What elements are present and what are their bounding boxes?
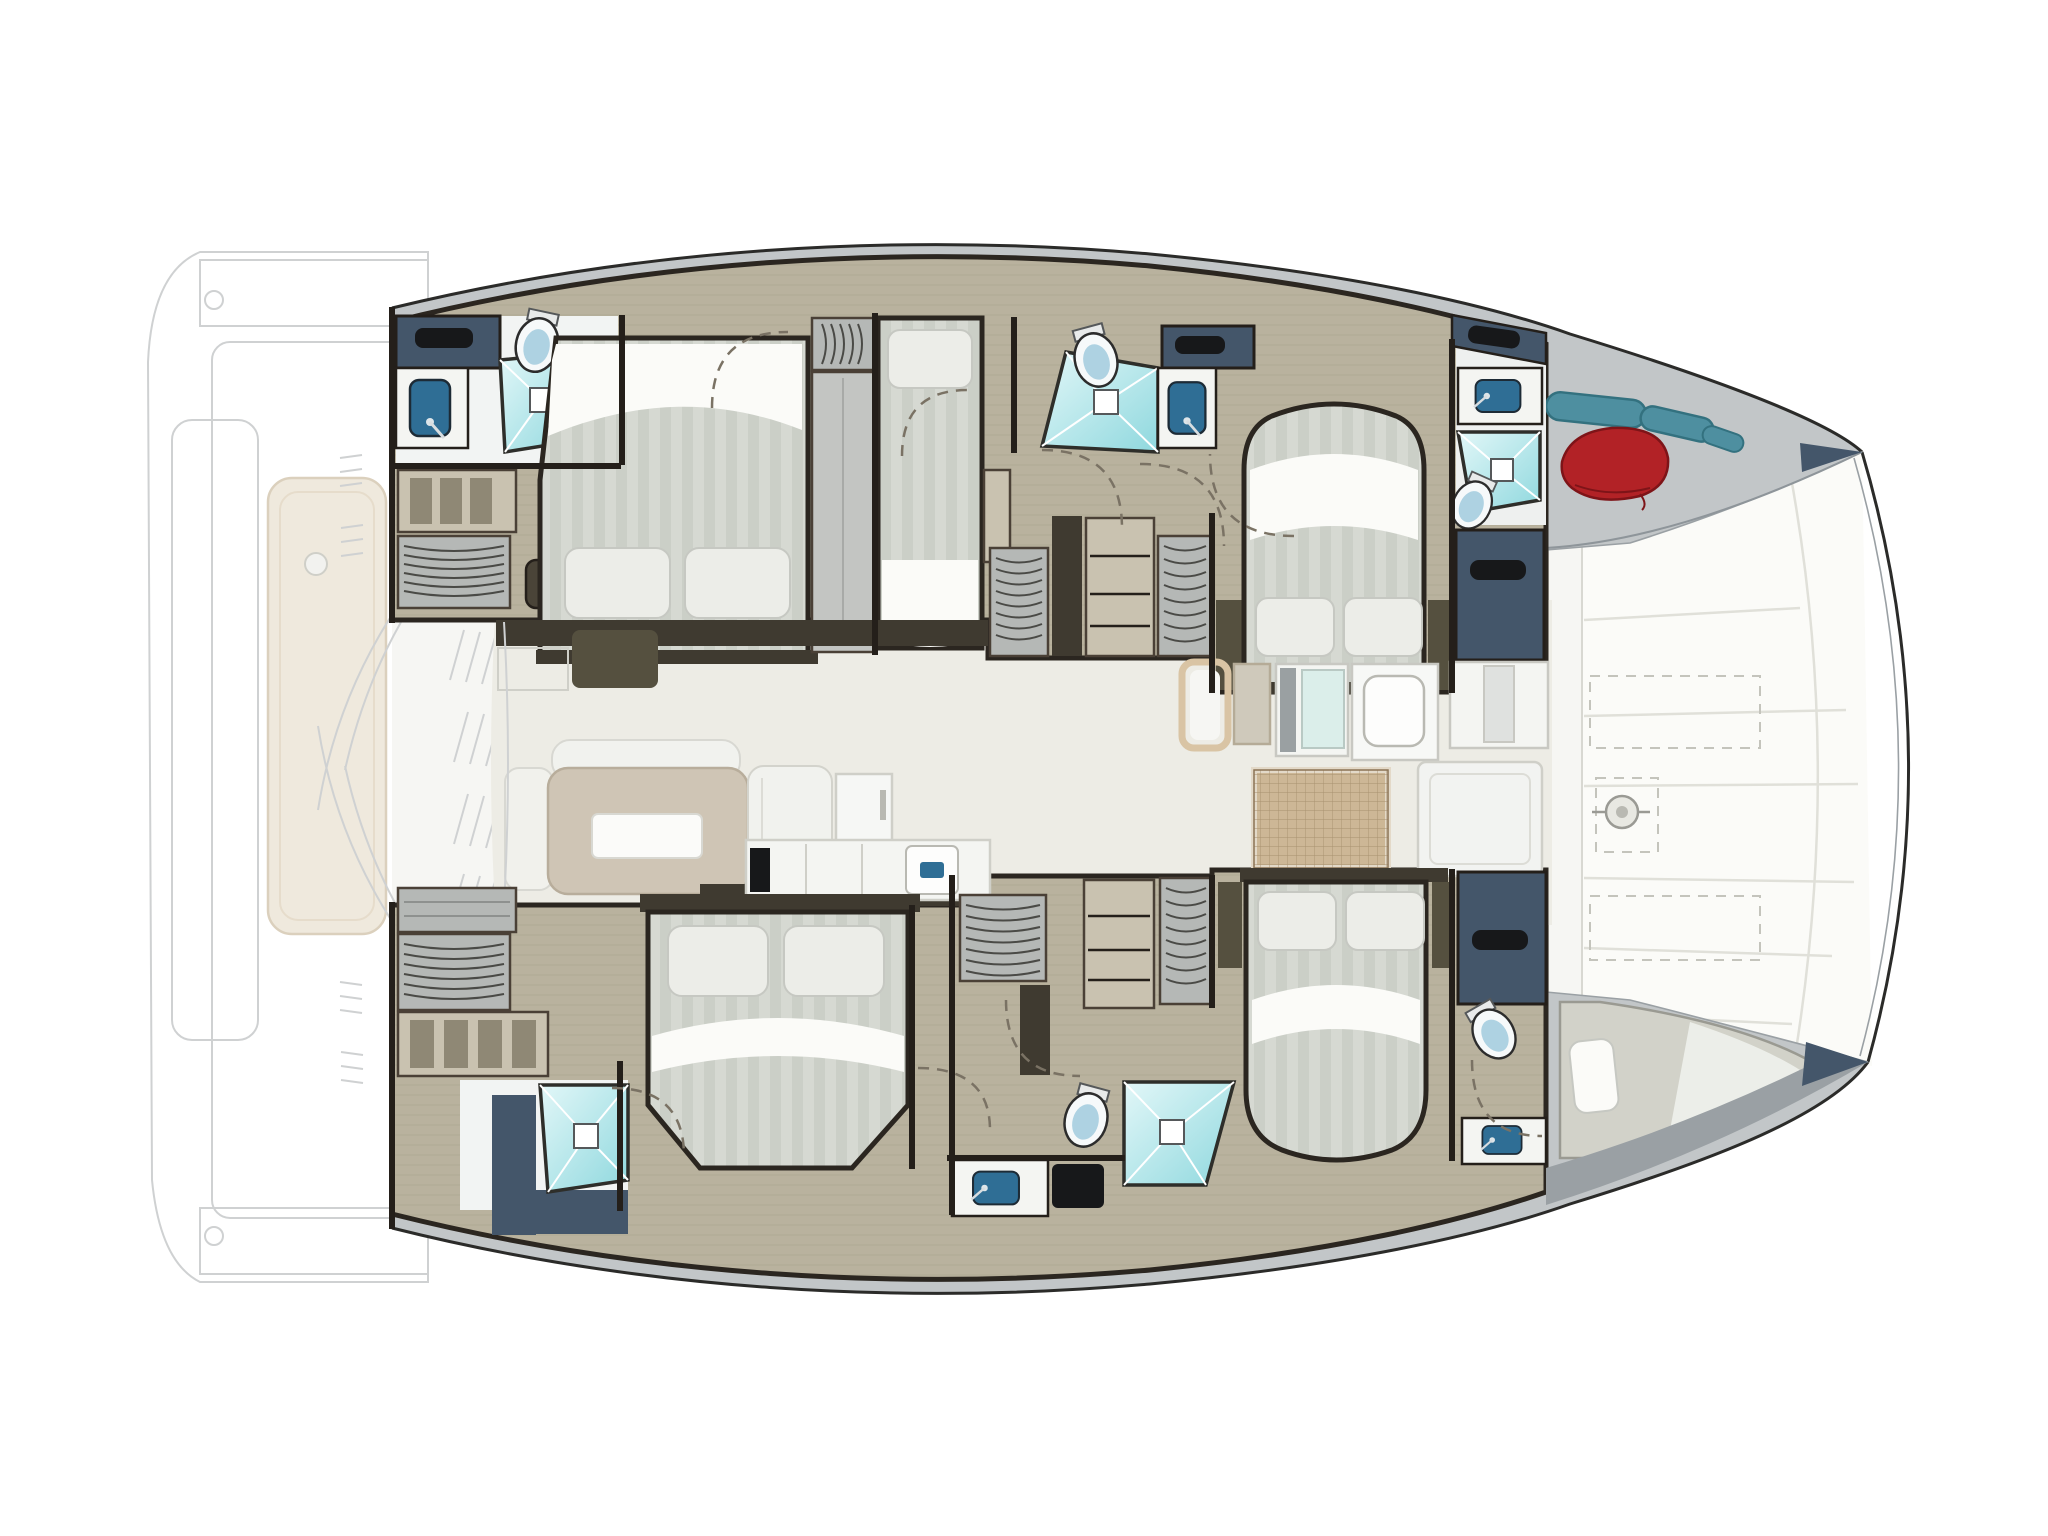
galley-sink-counter xyxy=(1352,664,1438,760)
wardrobe xyxy=(398,934,510,1010)
pillow xyxy=(668,926,768,996)
hanging-locker xyxy=(1158,536,1212,656)
hanger-box xyxy=(812,318,874,370)
aft-deck-cockpit xyxy=(148,252,428,1282)
yacht-floorplan xyxy=(0,0,2048,1536)
port-forepeak-door xyxy=(1456,530,1544,660)
north-sideboard xyxy=(496,620,988,646)
side-pad xyxy=(172,420,258,1040)
ladder-marks-bottom xyxy=(340,982,363,1083)
pillow xyxy=(1258,892,1336,950)
cockpit-floor xyxy=(392,598,498,928)
sink-unit xyxy=(952,1160,1048,1216)
shower-stall xyxy=(540,1085,628,1192)
stbd-forward-cabin xyxy=(1218,868,1454,1160)
pillow xyxy=(685,548,790,618)
fender-bag xyxy=(1562,428,1668,500)
wardrobe xyxy=(398,536,510,608)
cleat-bottom xyxy=(205,1227,223,1245)
navy-floor-b xyxy=(536,1190,628,1234)
woven-floor-mat xyxy=(1254,770,1388,868)
sideboard-box xyxy=(572,630,658,688)
shelf-slot xyxy=(410,478,432,524)
pillow xyxy=(565,548,670,618)
chaise-outline xyxy=(505,768,553,890)
coffee-table xyxy=(592,814,702,858)
counter-se xyxy=(1418,762,1542,876)
drawer-stack xyxy=(398,888,516,932)
shelf-unit xyxy=(1084,880,1154,1008)
pillow xyxy=(1344,598,1422,656)
shelf-slot xyxy=(440,478,462,524)
deck-filler-cap xyxy=(305,553,327,575)
door-handle xyxy=(1470,560,1526,580)
hanging-locker xyxy=(1160,878,1212,1004)
door-handle xyxy=(1472,930,1528,950)
galley-cabinet-ne xyxy=(1450,662,1548,748)
sink xyxy=(1474,380,1520,412)
sink-unit xyxy=(1462,1118,1546,1164)
cleat-top xyxy=(205,291,223,309)
port-aft-cabin-bed xyxy=(536,338,818,664)
port-forward-cabin xyxy=(1216,404,1450,694)
side-cabinet xyxy=(1218,882,1242,968)
shelf-slot xyxy=(470,478,492,524)
sun-lounger xyxy=(268,478,386,934)
tall-cabinet xyxy=(1052,516,1082,656)
navy-floor-a xyxy=(492,1095,536,1235)
pillow xyxy=(1256,598,1334,656)
floorplan-canvas xyxy=(0,0,2048,1536)
port-forward-bathroom xyxy=(1445,315,1546,535)
sink xyxy=(410,380,450,438)
tall-cabinet xyxy=(1020,985,1050,1075)
sink xyxy=(1169,382,1206,435)
door-handle xyxy=(415,328,473,348)
port-mid-divider xyxy=(812,318,874,652)
hanging-locker xyxy=(960,895,1046,981)
galley-counter-glass xyxy=(1276,664,1348,756)
pillow xyxy=(888,330,972,388)
pillow xyxy=(1346,892,1424,950)
shelf-unit xyxy=(398,1012,548,1076)
hanging-locker xyxy=(990,548,1048,656)
shelf-unit xyxy=(1086,518,1154,656)
pillow xyxy=(784,926,884,996)
headboard xyxy=(640,894,920,912)
door-handle xyxy=(1175,336,1225,354)
cockpit-strip xyxy=(392,598,500,928)
crew-berth-pillow xyxy=(1568,1038,1619,1114)
dark-cabinet xyxy=(1052,1164,1104,1208)
saloon-front-wall xyxy=(1548,512,1582,1022)
nav-console xyxy=(1234,664,1270,744)
stbd-aft-cabin-bed xyxy=(640,894,920,1168)
